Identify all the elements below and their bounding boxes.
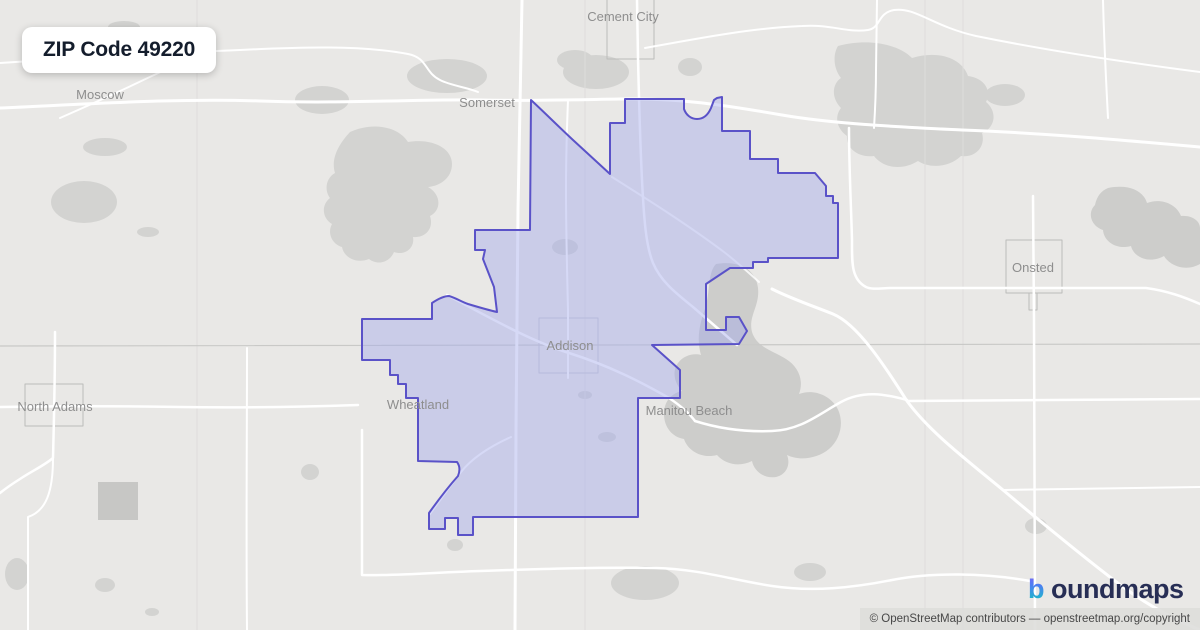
zip-badge-title: ZIP Code 49220 (43, 38, 195, 61)
map-canvas: MoscowSomersetCement CityOnstedNorth Ada… (0, 0, 1200, 630)
woods-patch (295, 86, 349, 114)
place-label-cement-city: Cement City (587, 9, 659, 24)
place-label-somerset: Somerset (459, 95, 515, 110)
woods-patch (985, 84, 1025, 106)
place-label-manitou-beach: Manitou Beach (646, 403, 733, 418)
woods-patch (794, 563, 826, 581)
place-label-onsted: Onsted (1012, 260, 1054, 275)
woods-patch (51, 181, 117, 223)
woods-patch (1025, 518, 1047, 534)
map-attribution: © OpenStreetMap contributors — openstree… (860, 608, 1200, 630)
zip-badge: ZIP Code 49220 (22, 27, 216, 73)
place-label-wheatland: Wheatland (387, 397, 449, 412)
woods-patch (5, 558, 29, 590)
boundmaps-logo-icon: b (1028, 574, 1044, 604)
boundmaps-logo: b oundmaps (1026, 570, 1186, 606)
woods-patch (95, 578, 115, 592)
woods-patch (678, 58, 702, 76)
svg-text:b oundmaps: b oundmaps (1028, 574, 1184, 604)
woods-patch (611, 566, 679, 600)
woods-patch (557, 50, 593, 70)
woods-patch (83, 138, 127, 156)
boundmaps-logo-graphic: b oundmaps (1026, 570, 1186, 606)
basemap: MoscowSomersetCement CityOnstedNorth Ada… (0, 0, 1200, 630)
boundmaps-logo-text: oundmaps (1051, 574, 1184, 604)
woods-patch (301, 464, 319, 480)
attribution-text: © OpenStreetMap contributors — openstree… (870, 613, 1190, 625)
woods-patch (137, 227, 159, 237)
place-label-addison: Addison (547, 338, 594, 353)
woods-patch (145, 608, 159, 616)
place-label-moscow: Moscow (76, 87, 124, 102)
woods-patch (447, 539, 463, 551)
woods-patch (407, 59, 487, 93)
woods-patch-dark (98, 482, 138, 520)
place-label-north-adams: North Adams (17, 399, 93, 414)
